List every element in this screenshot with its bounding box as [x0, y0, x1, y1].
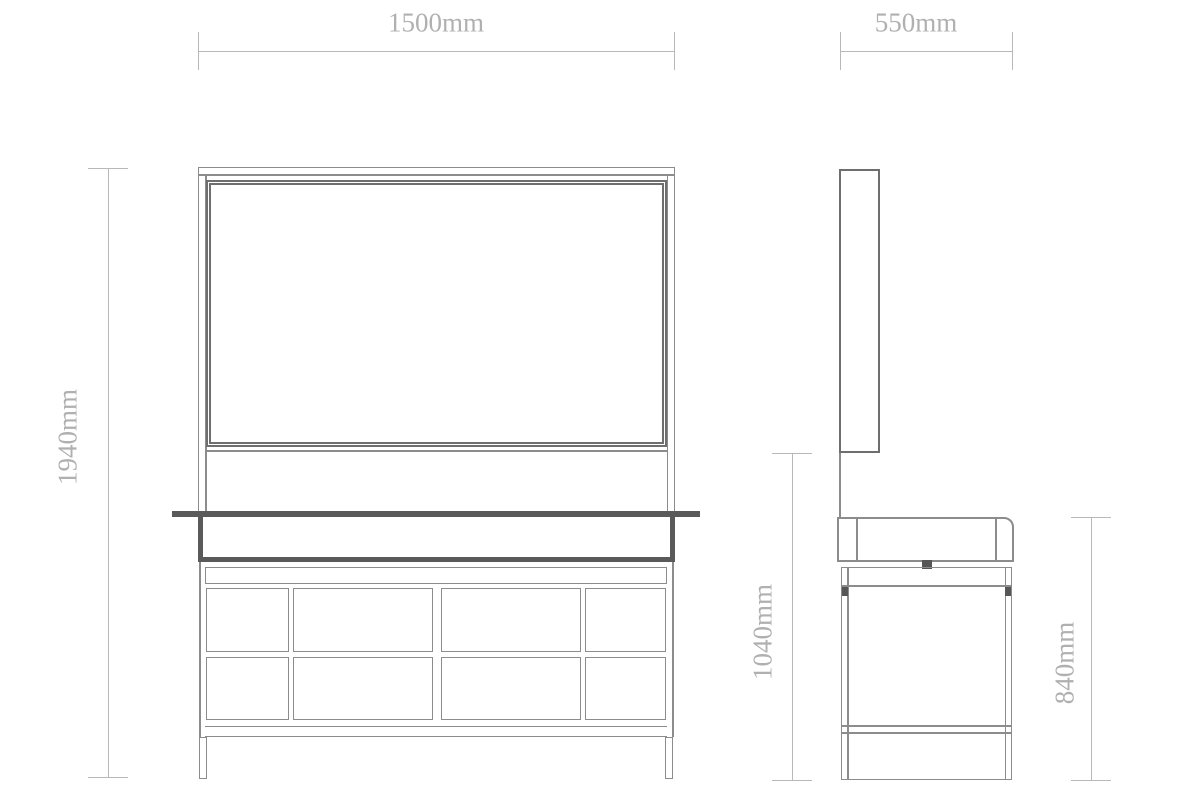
dimension-line — [840, 51, 1013, 52]
cabinet-compartment — [293, 588, 433, 652]
dimension-tick — [88, 168, 128, 169]
countertop-inner-line — [856, 519, 858, 560]
front-right-stile-outer — [672, 562, 674, 737]
side-top-band-line — [842, 585, 1011, 587]
dimension-tick — [840, 32, 841, 70]
side-back-support-line — [839, 453, 841, 517]
cabinet-compartment — [206, 588, 289, 652]
side-mirror-panel — [839, 169, 880, 453]
dimension-line — [198, 51, 675, 52]
dimension-front-width-label: 1500mm — [388, 10, 484, 37]
front-backsplash-line — [206, 450, 667, 452]
side-hinge-block — [1005, 587, 1011, 596]
dimension-tick — [1071, 780, 1111, 781]
dimension-line — [108, 168, 109, 777]
front-right-leg — [665, 737, 673, 779]
side-cabinet-body — [841, 567, 1012, 780]
side-shelf-line — [842, 725, 1011, 727]
side-inner-left-line — [847, 568, 849, 779]
side-hinge-block — [842, 587, 848, 596]
side-countertop — [837, 517, 1014, 562]
frame-inner-top-line — [199, 174, 674, 176]
cabinet-compartment — [585, 588, 666, 652]
dimension-line — [792, 453, 793, 780]
front-left-leg — [199, 737, 207, 779]
dimension-line — [1091, 517, 1092, 780]
dimension-tick — [1012, 32, 1013, 70]
dimension-tick — [772, 453, 812, 454]
cabinet-compartment — [206, 657, 289, 720]
side-shelf-line — [842, 732, 1011, 734]
compartment-row — [206, 657, 666, 720]
cabinet-compartment — [441, 657, 581, 720]
dimension-side-counter-height-label: 840mm — [1052, 622, 1079, 705]
compartment-row — [206, 588, 666, 652]
dimension-tick — [1071, 517, 1111, 518]
cabinet-compartment — [585, 657, 666, 720]
cabinet-compartment — [293, 657, 433, 720]
cabinet-compartment — [441, 588, 581, 652]
side-inner-right-line — [1005, 568, 1007, 779]
dimension-tick — [674, 32, 675, 70]
dimension-tick — [772, 780, 812, 781]
front-top-rail — [205, 567, 667, 584]
dimension-tick — [88, 777, 128, 778]
front-mirror — [206, 180, 667, 447]
front-basin-apron — [198, 517, 675, 562]
technical-drawing-canvas: 1500mm 550mm 1940mm 1040mm 840mm — [0, 0, 1184, 808]
front-compartment-grid — [206, 588, 666, 720]
front-left-stile-outer — [199, 562, 201, 737]
dimension-front-height-label: 1940mm — [55, 389, 82, 485]
countertop-inner-line — [995, 519, 997, 560]
dimension-tick — [198, 32, 199, 70]
dimension-side-width-label: 550mm — [875, 10, 958, 37]
front-bottom-rail — [205, 726, 667, 737]
dimension-side-upper-height-label: 1040mm — [750, 584, 777, 680]
